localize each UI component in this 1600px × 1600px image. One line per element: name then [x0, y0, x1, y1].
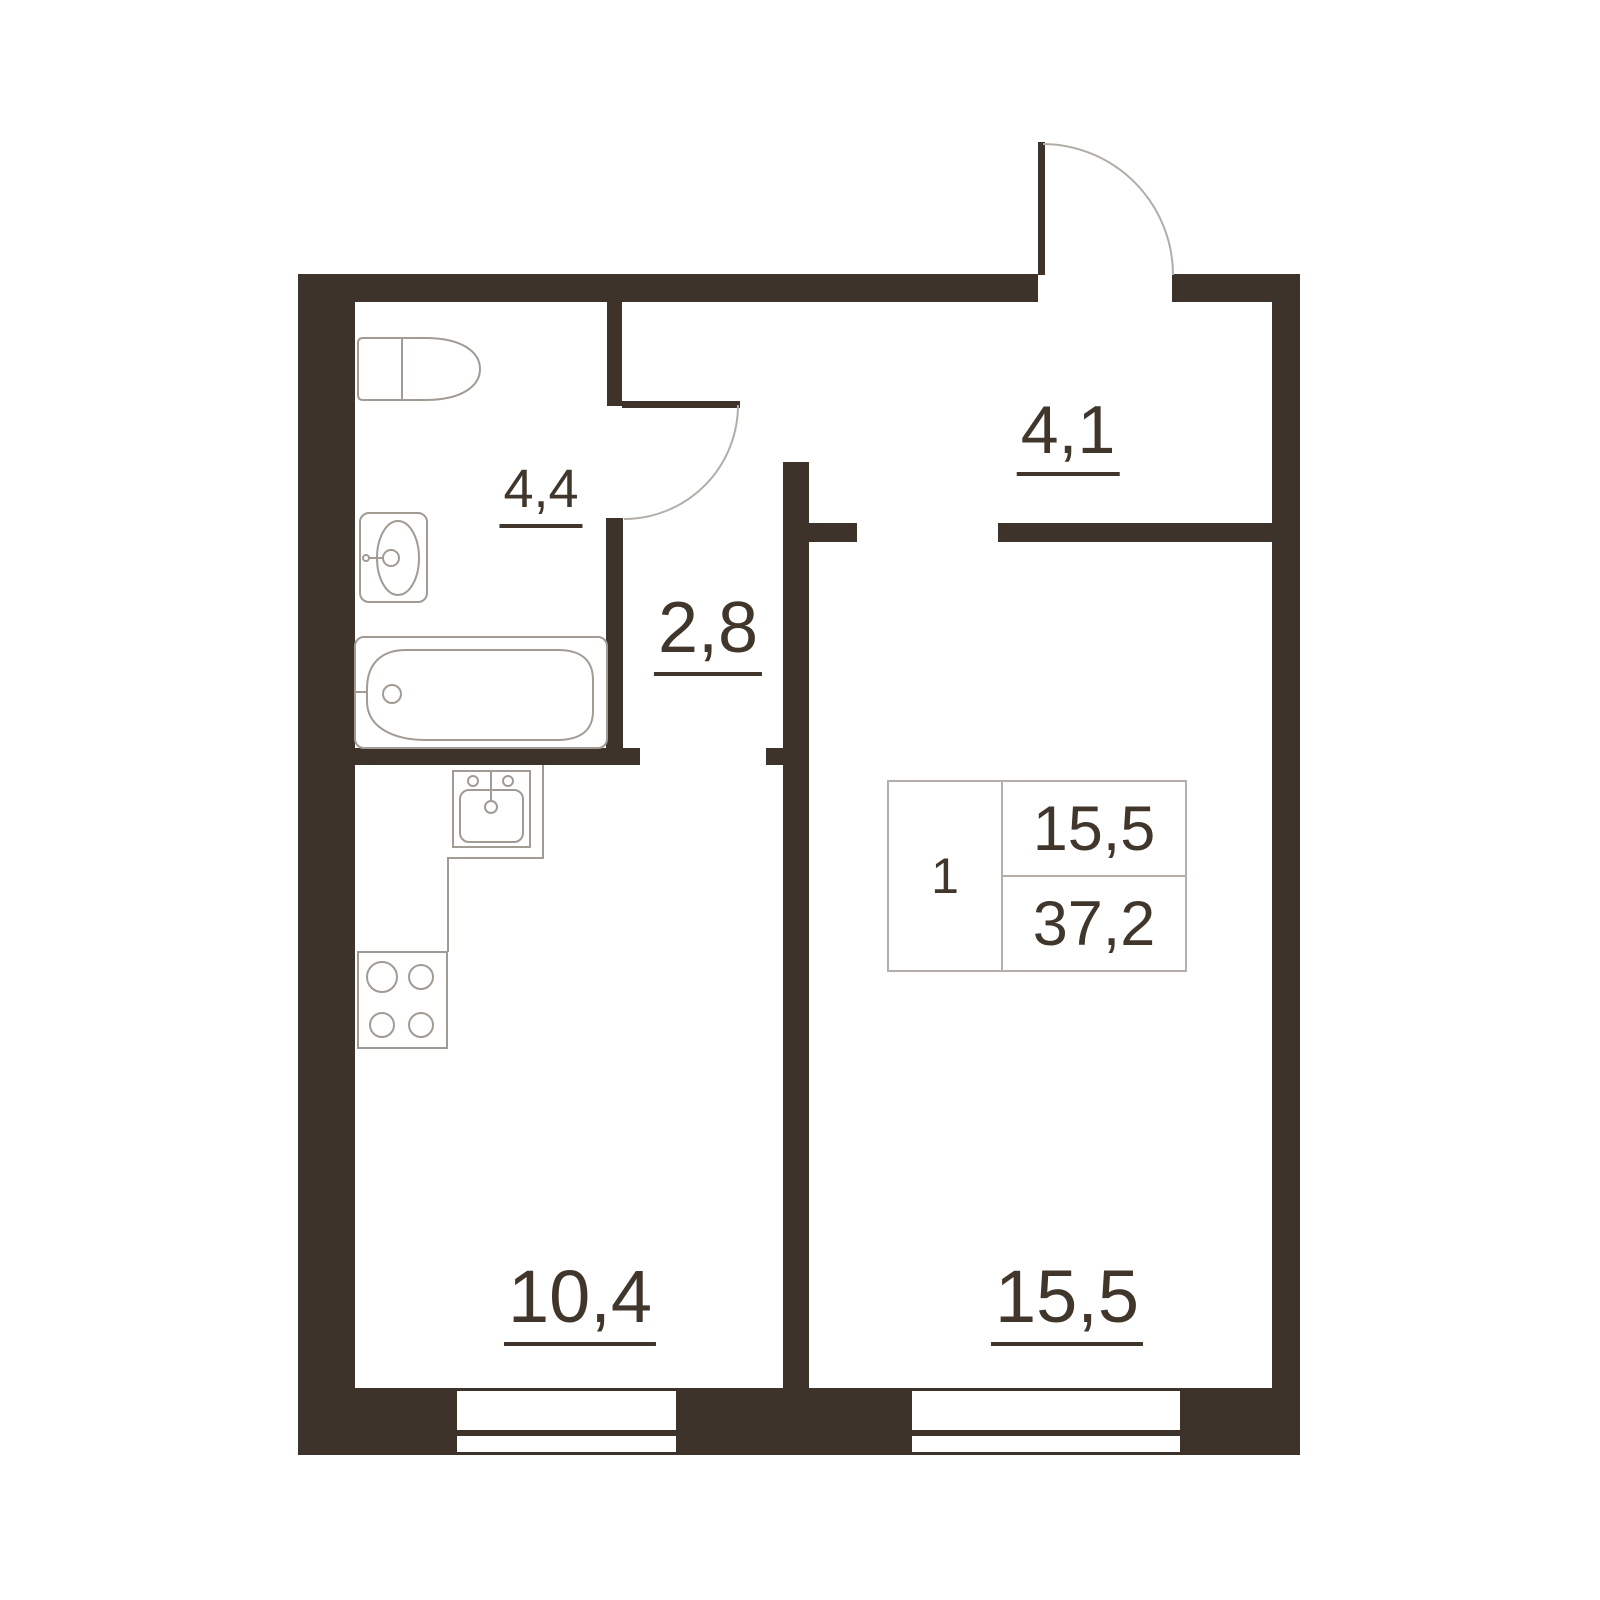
bathroom-door-arc [624, 405, 738, 519]
hallway-area-value: 2,8 [658, 588, 758, 668]
hallway-area-label: 2,8 [654, 592, 762, 676]
unit-total-area: 37,2 [1033, 888, 1156, 960]
unit-living-area-cell: 15,5 [1003, 782, 1185, 877]
bathroom-area-value: 4,4 [503, 459, 578, 519]
kitchen-area-label: 10,4 [504, 1260, 656, 1346]
stove-icon [358, 952, 447, 1048]
bathroom-area-label: 4,4 [499, 462, 582, 528]
unit-living-area: 15,5 [1033, 793, 1156, 865]
unit-rooms-count-cell: 1 [889, 782, 1003, 970]
unit-total-area-cell: 37,2 [1003, 877, 1185, 970]
entrance-door-arc [1043, 144, 1173, 275]
kitchen-sink-icon [453, 771, 530, 847]
floor-plan: 4,4 2,8 4,1 10,4 15,5 1 15,5 37,2 [0, 0, 1600, 1600]
living-room-area-label: 15,5 [991, 1260, 1143, 1346]
unit-areas-column: 15,5 37,2 [1003, 782, 1185, 970]
fixtures-layer [0, 0, 1600, 1600]
entrance-hall-area-value: 4,1 [1021, 392, 1116, 468]
unit-info-table: 1 15,5 37,2 [887, 780, 1187, 972]
living-room-area-value: 15,5 [995, 1255, 1139, 1338]
bathtub-icon [355, 637, 607, 748]
entrance-hall-area-label: 4,1 [1017, 396, 1120, 476]
washbasin-icon [360, 513, 427, 602]
toilet-icon [358, 338, 480, 400]
kitchen-area-value: 10,4 [508, 1255, 652, 1338]
unit-rooms-count: 1 [931, 847, 959, 905]
